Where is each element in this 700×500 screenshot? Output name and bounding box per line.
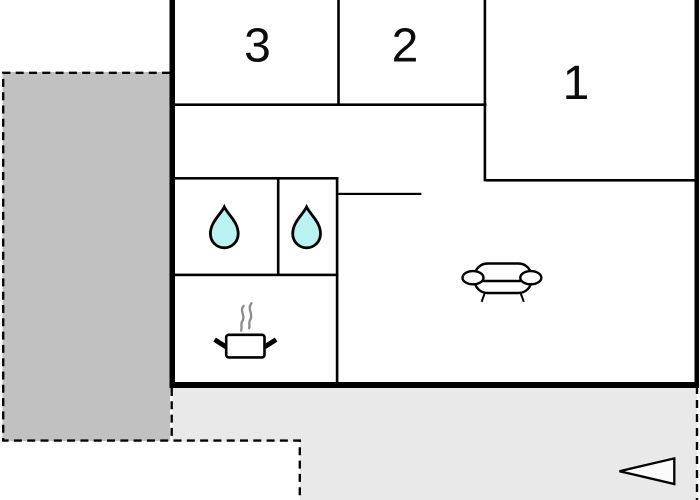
svg-text:1: 1 [563, 57, 590, 110]
svg-text:3: 3 [244, 20, 271, 73]
svg-text:2: 2 [392, 20, 419, 73]
